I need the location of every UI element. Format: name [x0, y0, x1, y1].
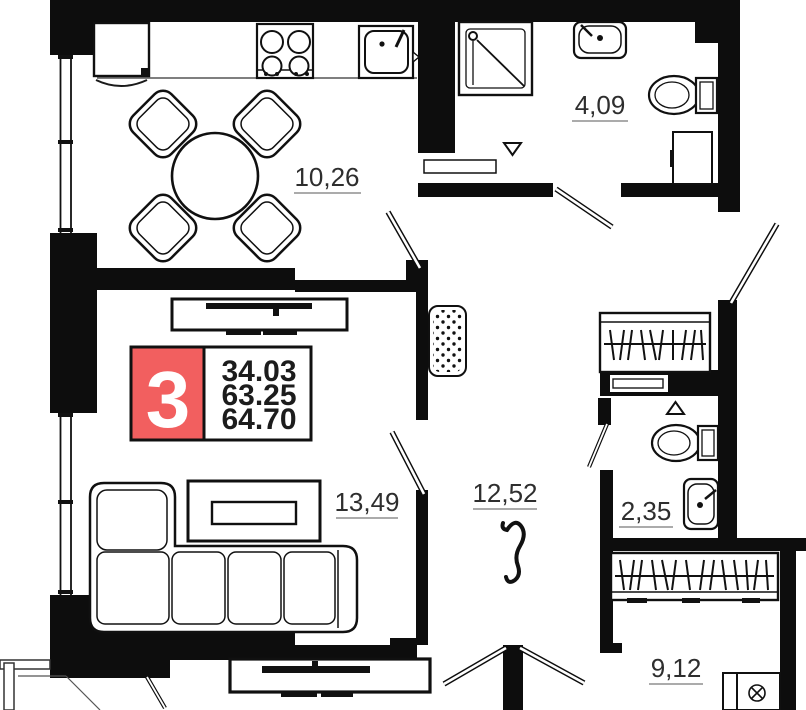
dining-table-icon: [172, 133, 258, 219]
door-balcony: [147, 677, 165, 708]
bathroom-sink-icon: [574, 22, 626, 58]
room-label-hall: 12,52: [472, 478, 537, 508]
decor-squiggle-icon: [503, 523, 524, 582]
wc-toilet-icon: [652, 425, 718, 461]
door-kitchen: [388, 212, 420, 268]
bathroom: [424, 22, 717, 184]
vent-shaft-icon: [429, 306, 466, 376]
wc-sink-icon: [684, 479, 718, 529]
room-label-living: 13,49: [334, 487, 399, 517]
washing-machine-icon: [670, 132, 712, 184]
room-label-bedroom: 9,12: [651, 653, 702, 683]
room-label-kitchen: 10,26: [294, 162, 359, 192]
floor-plan-drawing: 10,26 4,09 13,49 12,52 2,35 9,12 3 34.03…: [0, 0, 806, 710]
wardrobe-storage-icon: [600, 313, 710, 372]
shower-icon: [459, 22, 532, 95]
bedside-unit-icon: [723, 673, 780, 710]
dining-set: [125, 86, 305, 266]
door-living: [392, 432, 424, 494]
double-door-right-leaf: [520, 648, 584, 683]
bathroom-shelf: [424, 160, 496, 173]
door-wc: [589, 424, 607, 467]
room-label-wc: 2,35: [621, 496, 672, 526]
door-bathroom: [556, 189, 612, 227]
kitchen-sink-icon: [359, 26, 419, 78]
info-badge: 3 34.03 63.25 64.70: [131, 347, 311, 444]
badge-rooms-count: 3: [146, 355, 191, 444]
wardrobe-bedroom-icon: [611, 553, 778, 603]
double-door-left-leaf: [444, 648, 506, 684]
floor-plan: 10,26 4,09 13,49 12,52 2,35 9,12 3 34.03…: [0, 0, 806, 710]
tv-console-icon: [172, 299, 347, 335]
stove-icon: [257, 24, 313, 78]
coffee-table-icon: [188, 481, 320, 541]
badge-area-3: 64.70: [221, 403, 296, 436]
kitchen: [94, 23, 419, 266]
fridge-icon: [94, 23, 149, 86]
room-label-bathroom: 4,09: [575, 90, 626, 120]
door-entrance: [731, 224, 777, 303]
vent-triangle-icon: [504, 143, 521, 155]
vent-triangle-icon: [667, 402, 684, 414]
bathroom-toilet-icon: [649, 76, 717, 114]
window-kitchen: [50, 55, 97, 233]
tv-stand-icon: [230, 659, 430, 697]
